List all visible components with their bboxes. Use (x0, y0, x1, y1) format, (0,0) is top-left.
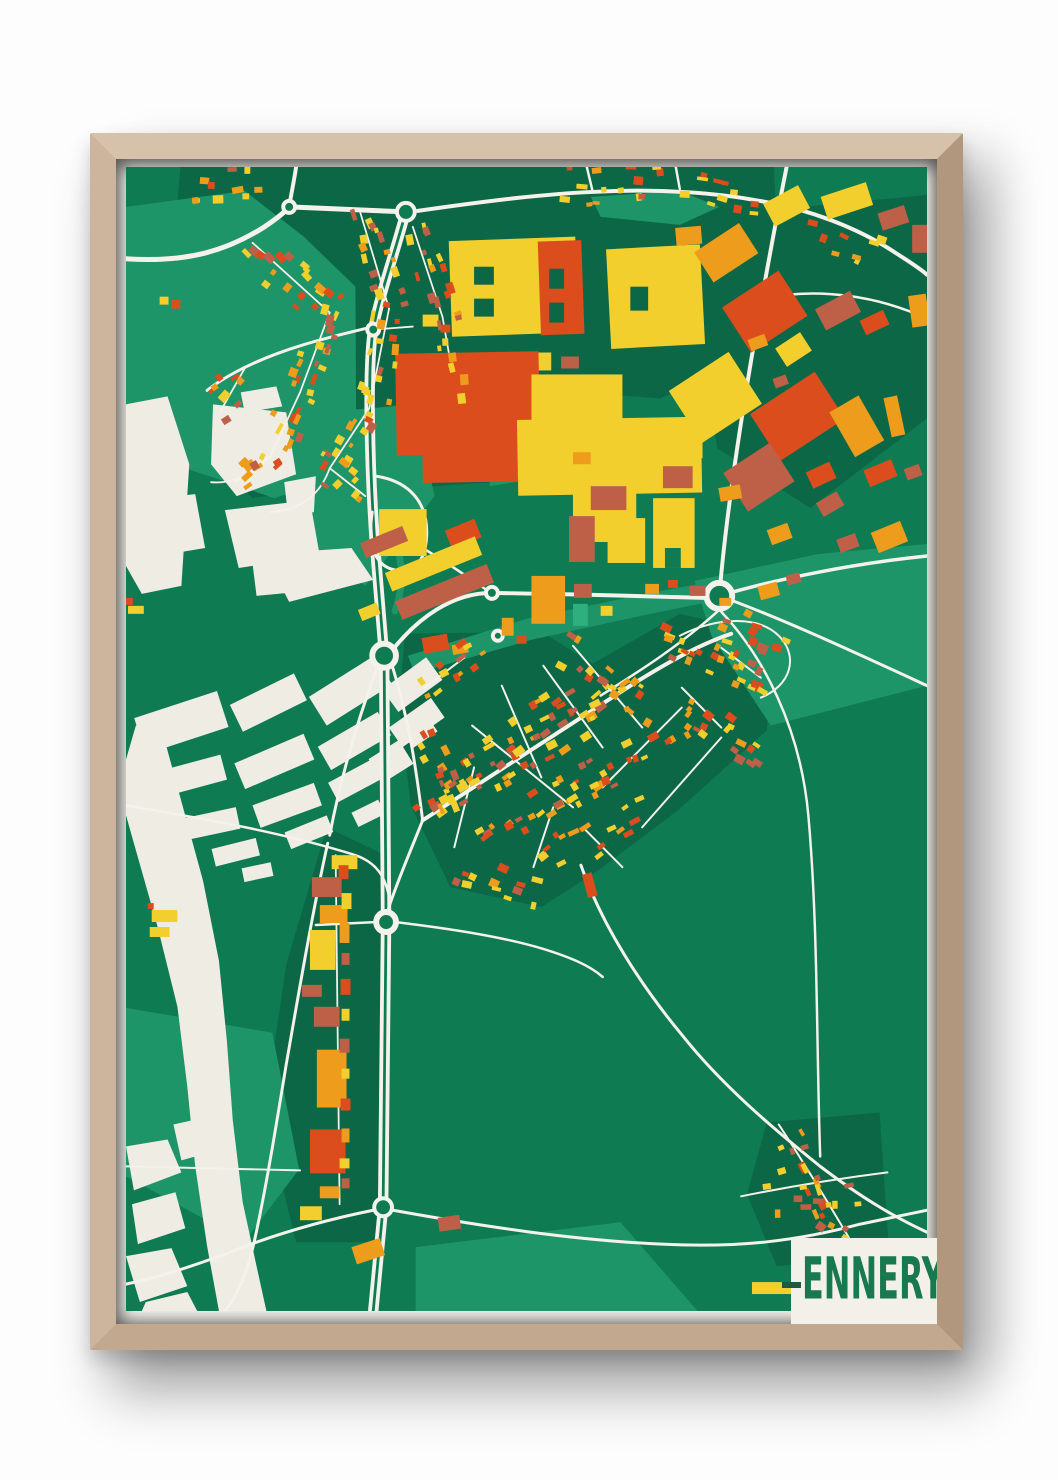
map-title-box: ENNERY (791, 1238, 937, 1324)
poster: ENNERY (116, 159, 937, 1324)
map-title: ENNERY (802, 1244, 937, 1312)
city-map (126, 167, 927, 1311)
poster-frame: ENNERY (90, 133, 963, 1350)
title-dash-icon (782, 1282, 801, 1288)
wall: ENNERY (0, 0, 1058, 1480)
